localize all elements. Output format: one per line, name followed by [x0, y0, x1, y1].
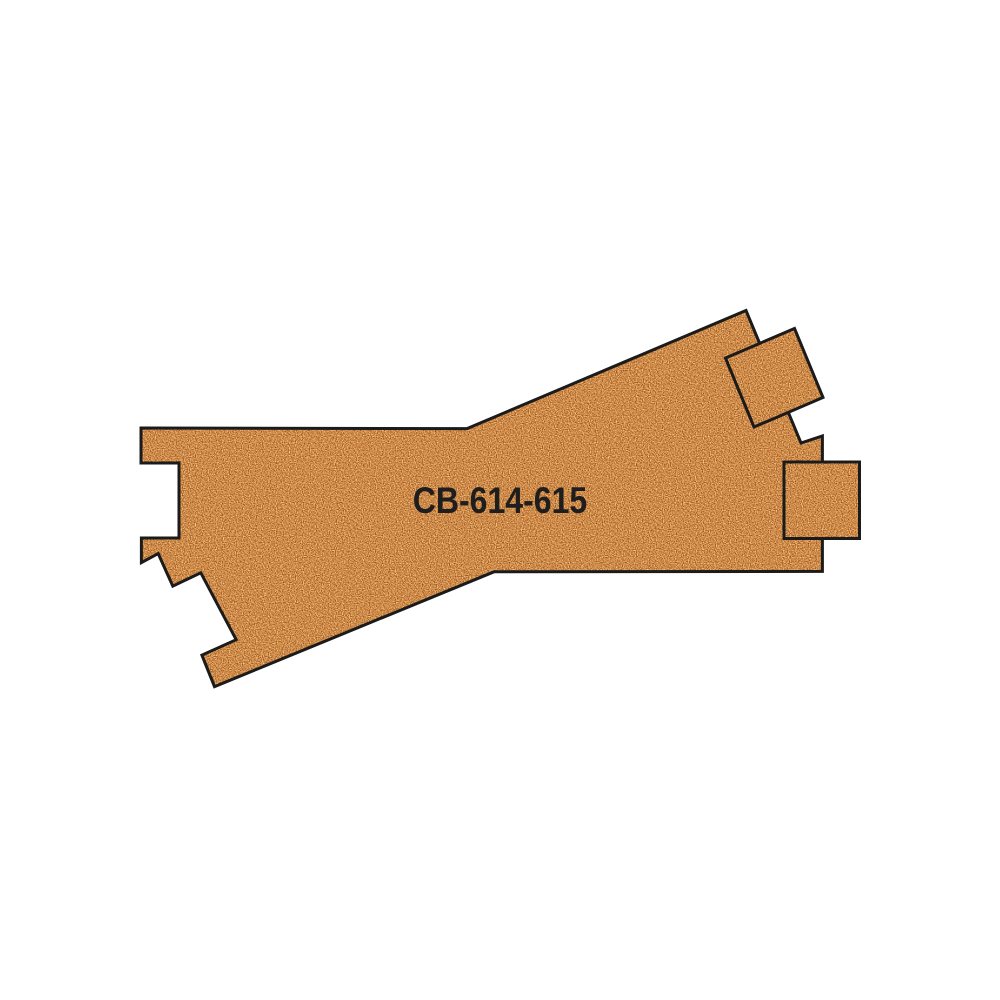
svg-text:CB-614-615: CB-614-615	[413, 480, 588, 521]
